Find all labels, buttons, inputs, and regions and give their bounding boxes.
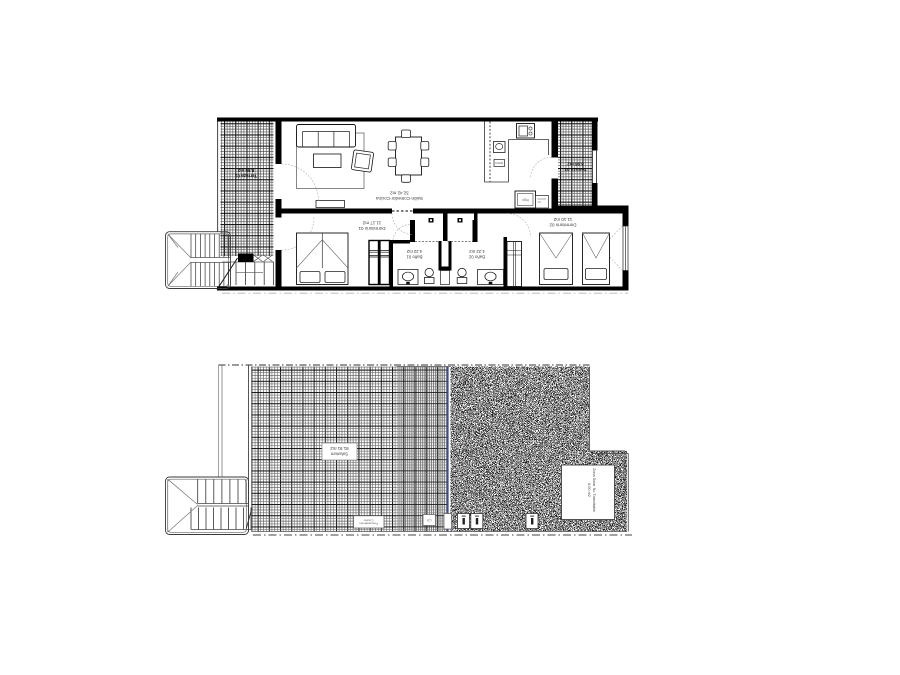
- svg-text:81.91 m2: 81.91 m2: [330, 446, 349, 451]
- svg-text:4.22 m2: 4.22 m2: [469, 249, 485, 254]
- svg-text:horno: horno: [495, 161, 503, 165]
- svg-text:Solarium: Solarium: [330, 452, 348, 457]
- svg-text:8.50 m2: 8.50 m2: [237, 168, 254, 173]
- svg-text:8.96 m2: 8.96 m2: [567, 162, 584, 167]
- svg-text:Cocina: Cocina: [364, 518, 374, 522]
- svg-text:Salón-Comedor-Cocina: Salón-Comedor-Cocina: [375, 196, 423, 201]
- svg-text:Dormitorio 02: Dormitorio 02: [549, 223, 577, 228]
- svg-text:11.17 m2: 11.17 m2: [362, 220, 381, 225]
- svg-text:Baño 02: Baño 02: [468, 255, 485, 260]
- svg-text:8.00 m2: 8.00 m2: [587, 483, 591, 497]
- svg-text:Dormitorio 01: Dormitorio 01: [358, 226, 386, 231]
- svg-text:Terraza 02: Terraza 02: [564, 167, 586, 172]
- svg-text:4.22 m2: 4.22 m2: [406, 249, 422, 254]
- svg-text:Zona Solar No Transitable: Zona Solar No Transitable: [592, 468, 596, 512]
- svg-text:CV: CV: [426, 518, 431, 522]
- svg-text:frigo: frigo: [522, 198, 528, 202]
- svg-text:Terraza 01: Terraza 01: [235, 174, 257, 179]
- svg-text:11.10 m2: 11.10 m2: [553, 217, 572, 222]
- svg-text:Baño 01: Baño 01: [406, 255, 423, 260]
- svg-text:32.42 m2: 32.42 m2: [390, 191, 409, 196]
